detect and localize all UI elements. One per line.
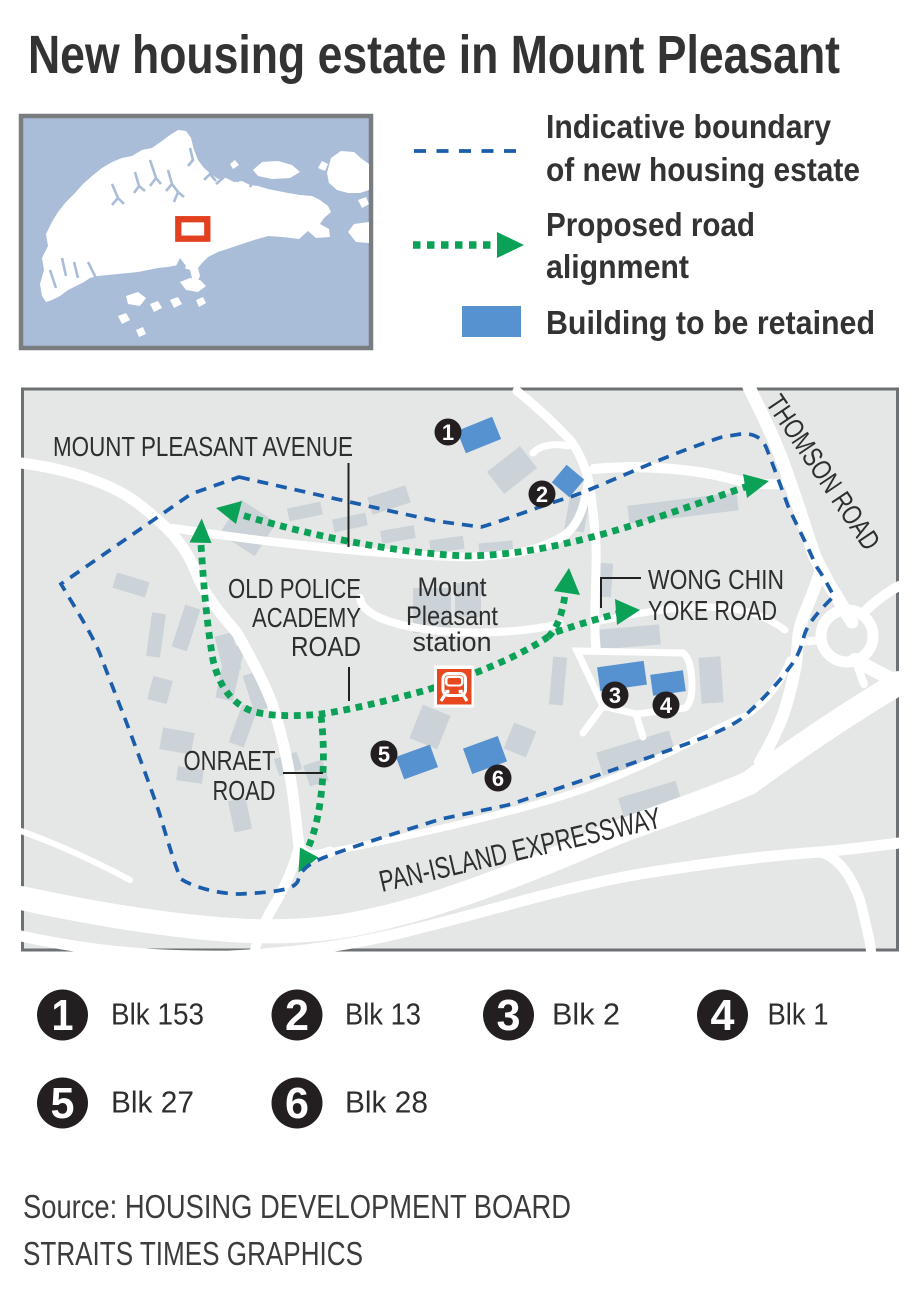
svg-text:2: 2 <box>536 482 548 507</box>
svg-text:1: 1 <box>442 420 454 445</box>
svg-text:6: 6 <box>492 766 504 791</box>
svg-text:Blk 2: Blk 2 <box>552 997 620 1032</box>
svg-text:3: 3 <box>497 991 521 1040</box>
svg-text:ROAD: ROAD <box>291 631 361 662</box>
svg-text:4: 4 <box>660 693 673 718</box>
svg-text:Blk 13: Blk 13 <box>345 997 421 1032</box>
svg-text:ACADEMY: ACADEMY <box>252 602 361 633</box>
svg-text:station: station <box>413 627 492 657</box>
svg-text:5: 5 <box>51 1079 75 1128</box>
svg-text:4: 4 <box>711 991 736 1040</box>
svg-text:Proposed road: Proposed road <box>546 206 755 243</box>
svg-text:Mount: Mount <box>418 572 487 602</box>
svg-text:5: 5 <box>378 742 390 767</box>
svg-text:Source: HOUSING DEVELOPMENT BO: Source: HOUSING DEVELOPMENT BOARD <box>23 1188 571 1225</box>
svg-text:ONRAET: ONRAET <box>184 745 276 776</box>
svg-text:MOUNT PLEASANT AVENUE: MOUNT PLEASANT AVENUE <box>53 431 353 462</box>
svg-text:alignment: alignment <box>546 248 689 285</box>
svg-text:Blk 153: Blk 153 <box>111 997 204 1032</box>
svg-text:3: 3 <box>609 683 621 708</box>
svg-text:of new housing estate: of new housing estate <box>546 151 860 188</box>
svg-text:2: 2 <box>285 991 309 1040</box>
svg-text:1: 1 <box>52 991 74 1040</box>
svg-text:Blk 28: Blk 28 <box>345 1085 428 1120</box>
svg-text:Building to be retained: Building to be retained <box>546 304 875 341</box>
svg-text:YOKE ROAD: YOKE ROAD <box>648 595 777 626</box>
svg-text:Blk 1: Blk 1 <box>768 997 829 1032</box>
svg-text:New housing estate in Mount Pl: New housing estate in Mount Pleasant <box>28 25 840 85</box>
svg-text:ROAD: ROAD <box>213 775 276 806</box>
svg-text:6: 6 <box>285 1079 309 1128</box>
svg-text:STRAITS TIMES GRAPHICS: STRAITS TIMES GRAPHICS <box>23 1235 363 1272</box>
svg-text:OLD POLICE: OLD POLICE <box>228 573 361 604</box>
svg-text:Indicative boundary: Indicative boundary <box>546 108 832 145</box>
svg-text:WONG CHIN: WONG CHIN <box>648 564 784 595</box>
svg-text:Blk 27: Blk 27 <box>111 1085 194 1120</box>
